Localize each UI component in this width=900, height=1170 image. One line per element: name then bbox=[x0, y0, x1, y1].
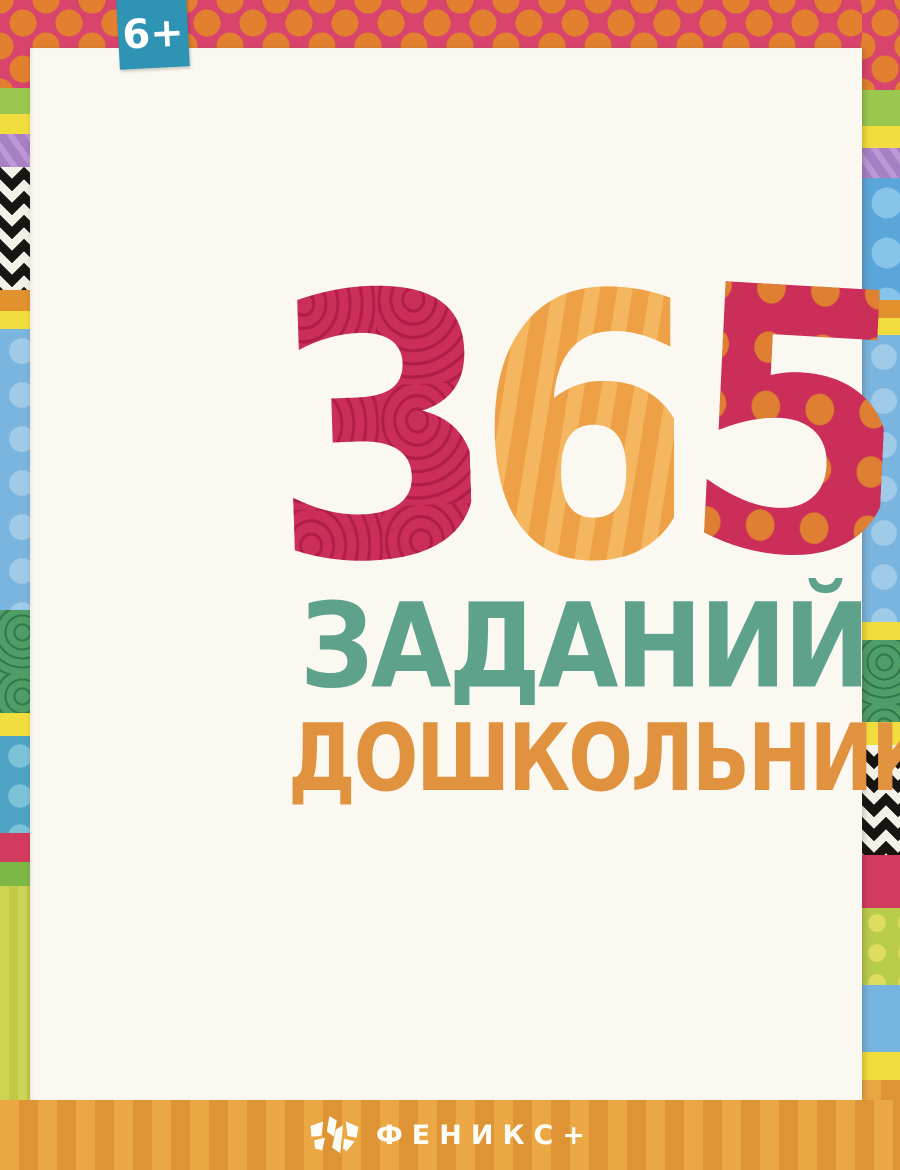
strip-segment-green bbox=[0, 862, 30, 886]
title-digit-3: 3 bbox=[263, 261, 473, 598]
strip-segment-crimson bbox=[862, 855, 900, 908]
strip-segment-lime-dots bbox=[862, 908, 900, 985]
publisher-name: ФЕНИКС+ bbox=[376, 1120, 594, 1151]
strip-segment-dots-pink bbox=[862, 0, 900, 90]
strip-segment-blue-dots bbox=[0, 329, 30, 610]
strip-segment-chevron bbox=[0, 167, 30, 290]
age-badge: 6+ bbox=[116, 0, 190, 70]
title-digit-5: 5 bbox=[676, 253, 891, 594]
left-border-strip bbox=[0, 0, 30, 1170]
strip-segment-blue bbox=[862, 985, 900, 1052]
title-digit-6: 6 bbox=[474, 265, 674, 595]
strip-segment-green-swirl bbox=[0, 610, 30, 713]
title-word-doshkolnika: ДОШКОЛЬНИКА bbox=[288, 712, 872, 805]
strip-segment-yellow bbox=[0, 713, 30, 736]
strip-segment-yellow bbox=[0, 114, 30, 134]
book-cover: 6+ bbox=[0, 0, 900, 1170]
strip-segment-purple-stripes bbox=[862, 148, 900, 178]
strip-segment-yellow bbox=[862, 1052, 900, 1080]
publisher-band: ФЕНИКС+ bbox=[0, 1100, 900, 1170]
strip-segment-purple-stripes bbox=[0, 134, 30, 167]
strip-segment-dots-pink bbox=[0, 0, 30, 88]
strip-segment-green bbox=[0, 88, 30, 114]
strip-segment-orange bbox=[0, 290, 30, 311]
title-number: 3 6 5 bbox=[286, 280, 866, 590]
strip-segment-green bbox=[862, 90, 900, 126]
title-word-zadaniy: ЗАДАНИЙ bbox=[300, 588, 860, 704]
phoenix-logo-icon bbox=[306, 1112, 362, 1158]
strip-segment-teal-dots bbox=[0, 736, 30, 833]
strip-segment-yellow bbox=[862, 126, 900, 148]
strip-segment-crimson bbox=[0, 833, 30, 862]
strip-segment-yellow bbox=[0, 311, 30, 329]
age-badge-label: 6+ bbox=[121, 5, 185, 58]
